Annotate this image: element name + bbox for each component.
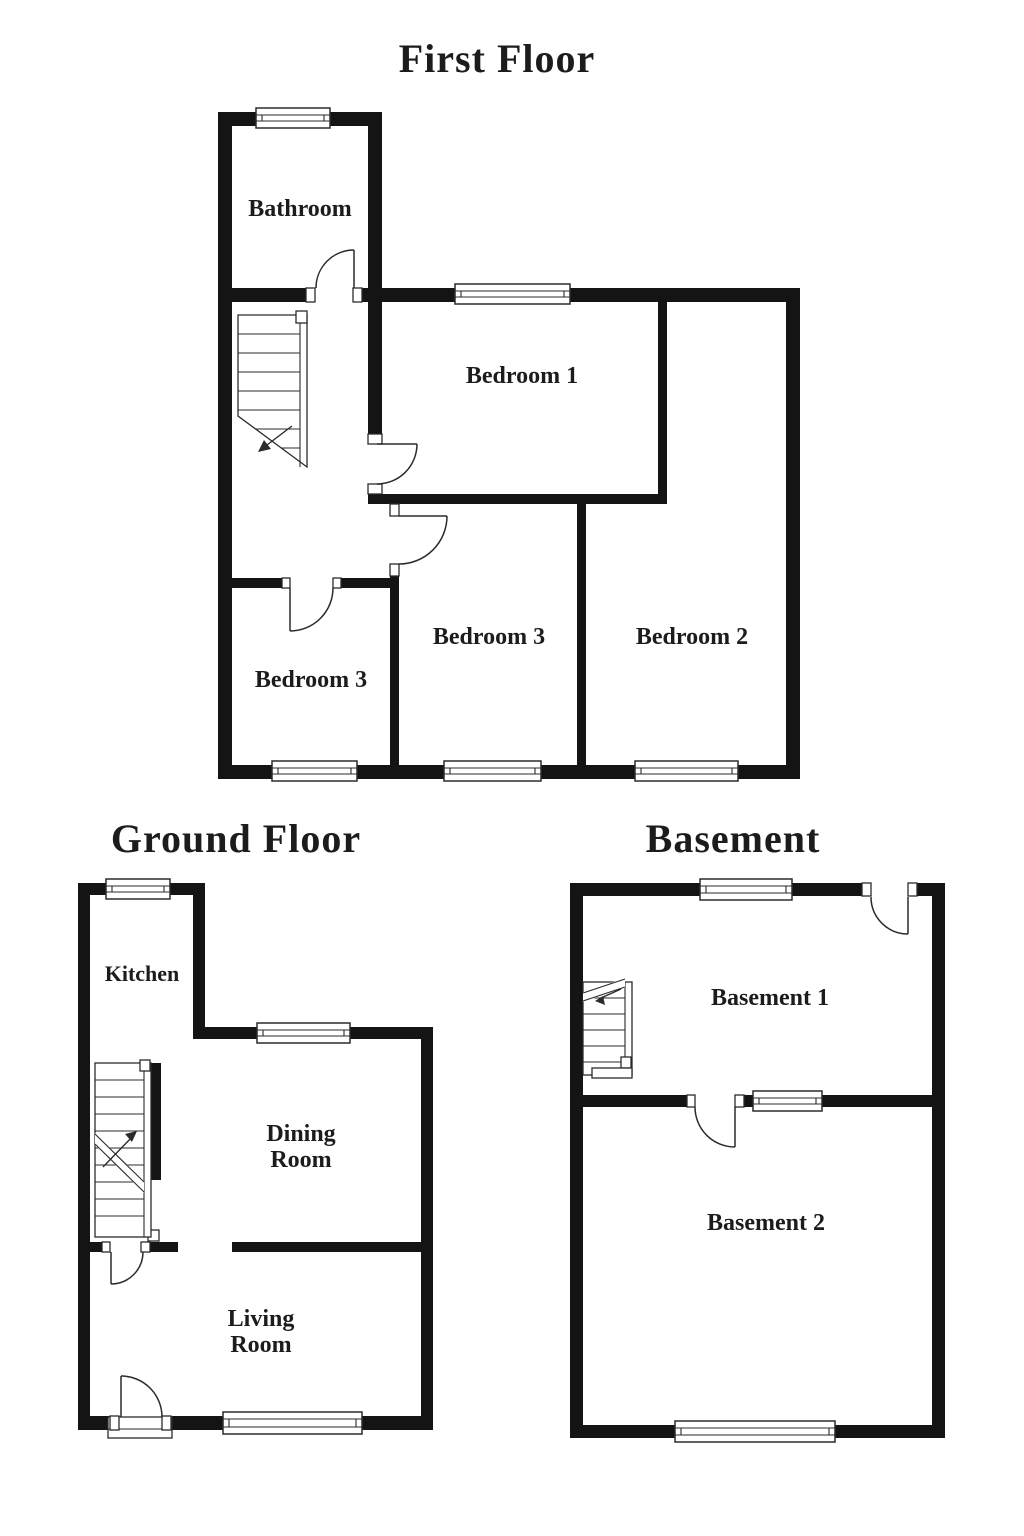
room-label-kitchen: Kitchen bbox=[105, 961, 180, 986]
room-label-dining-line2: Room bbox=[270, 1147, 331, 1173]
first-floor-room-labels: Bathroom Bedroom 1 Bedroom 3 Bedroom 2 B… bbox=[248, 196, 748, 693]
wall-segment bbox=[151, 1063, 161, 1180]
stair-landing-step bbox=[592, 1068, 632, 1078]
door-jamb bbox=[368, 434, 382, 444]
stair-newel bbox=[621, 1057, 631, 1068]
ground-floor-title: Ground Floor bbox=[111, 816, 361, 861]
ground-floor-jambs bbox=[102, 1230, 171, 1430]
wall-segment bbox=[932, 883, 945, 1438]
wall-segment bbox=[193, 883, 205, 1039]
living-room-window bbox=[223, 1412, 362, 1434]
wall-segment bbox=[368, 112, 382, 302]
door-jamb bbox=[353, 288, 362, 302]
door-jamb bbox=[282, 578, 290, 588]
wall-segment bbox=[78, 883, 90, 1430]
wall-segment bbox=[368, 494, 667, 504]
door-jamb bbox=[687, 1095, 695, 1107]
door-jamb bbox=[141, 1242, 150, 1252]
room-label-basement1: Basement 1 bbox=[711, 985, 829, 1011]
room-label-bathroom: Bathroom bbox=[248, 196, 352, 222]
door-opening bbox=[282, 577, 341, 589]
door-jamb bbox=[908, 883, 917, 896]
door-jamb bbox=[162, 1416, 171, 1430]
floorplan-page: First Floor bbox=[0, 0, 1024, 1536]
basement-plan: Basement bbox=[570, 816, 945, 1442]
kitchen-window bbox=[106, 879, 170, 899]
wall-segment bbox=[577, 504, 586, 765]
basement1-entry-door bbox=[871, 897, 908, 934]
wall-segment bbox=[570, 883, 583, 1438]
room-label-living-line2: Room bbox=[230, 1332, 291, 1358]
room-label-bedroom3-middle: Bedroom 3 bbox=[433, 624, 545, 650]
room-label-basement2: Basement 2 bbox=[707, 1210, 825, 1236]
bedroom3-left-window bbox=[272, 761, 357, 781]
wall-segment bbox=[786, 288, 800, 779]
bedroom3-left-door bbox=[290, 588, 333, 631]
stair-newel bbox=[140, 1060, 150, 1071]
basement-staircase bbox=[583, 978, 632, 1078]
first-floor-title: First Floor bbox=[399, 36, 596, 81]
door-jamb bbox=[390, 564, 399, 576]
living-room-door bbox=[111, 1252, 143, 1284]
room-label-dining-line1: Dining bbox=[266, 1121, 335, 1147]
bedroom1-window bbox=[455, 284, 570, 304]
basement-walls bbox=[570, 883, 945, 1438]
room-label-living-line1: Living bbox=[228, 1306, 295, 1332]
bathroom-window bbox=[256, 108, 330, 128]
bedroom3-middle-door bbox=[399, 516, 447, 564]
first-floor-plan: First Floor bbox=[218, 36, 800, 781]
basement1-window bbox=[700, 879, 792, 900]
door-jamb bbox=[862, 883, 871, 896]
bathroom-door bbox=[316, 250, 354, 288]
ground-floor-plan: Ground Floor bbox=[78, 816, 433, 1438]
basement-partition-window bbox=[753, 1091, 822, 1111]
room-label-bedroom1: Bedroom 1 bbox=[466, 363, 578, 389]
door-jamb bbox=[735, 1095, 744, 1107]
bedroom2-window bbox=[635, 761, 738, 781]
door-jamb bbox=[390, 504, 399, 516]
bedroom3-middle-window bbox=[444, 761, 541, 781]
room-label-bedroom3-left: Bedroom 3 bbox=[255, 667, 367, 693]
door-jamb bbox=[110, 1416, 119, 1430]
floorplan-canvas: First Floor bbox=[0, 0, 1024, 1536]
door-jamb bbox=[102, 1242, 110, 1252]
stair-newel bbox=[296, 311, 307, 323]
door-jamb bbox=[333, 578, 341, 588]
basement2-window bbox=[675, 1421, 835, 1442]
basement-title: Basement bbox=[646, 816, 821, 861]
wall-segment bbox=[421, 1027, 433, 1430]
dining-room-window bbox=[257, 1023, 350, 1043]
front-entry-door bbox=[121, 1376, 162, 1417]
basement2-door bbox=[695, 1107, 735, 1147]
wall-segment bbox=[218, 112, 232, 779]
room-label-bedroom2: Bedroom 2 bbox=[636, 624, 748, 650]
passage-opening bbox=[178, 1241, 232, 1253]
door-jamb bbox=[306, 288, 315, 302]
first-floor-staircase bbox=[238, 311, 307, 467]
ground-floor-staircase bbox=[95, 1060, 151, 1237]
door-jamb bbox=[368, 484, 382, 494]
wall-segment bbox=[658, 302, 667, 504]
